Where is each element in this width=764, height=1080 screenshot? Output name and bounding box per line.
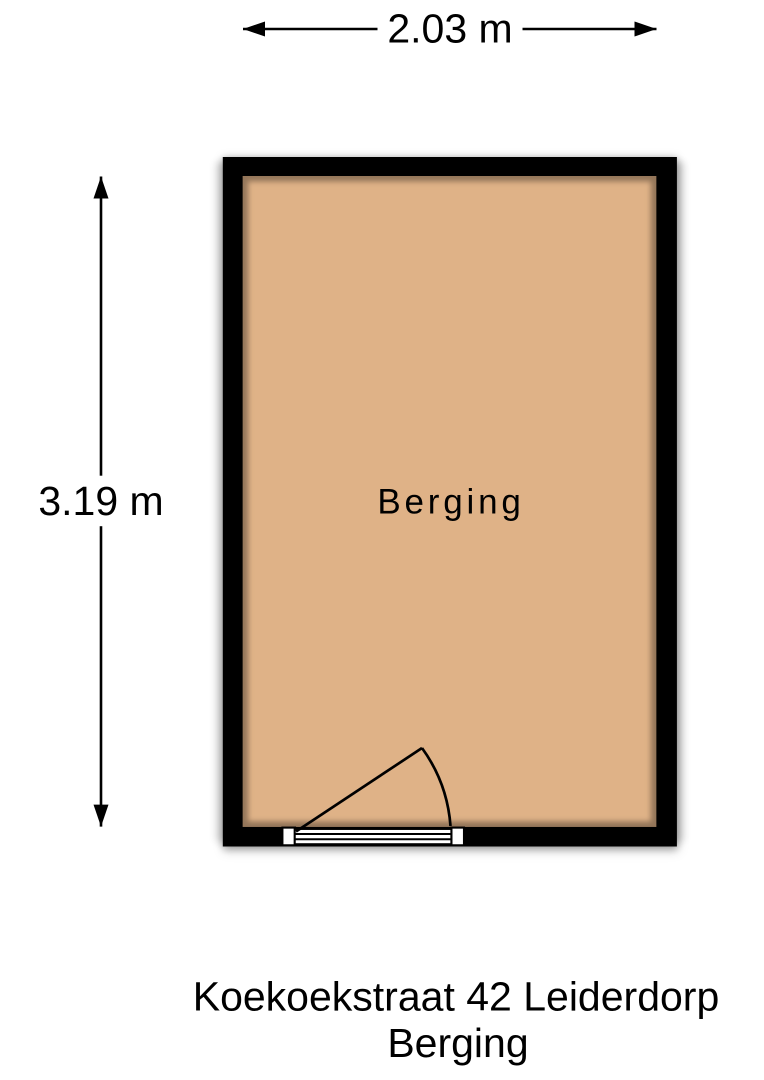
svg-text:Berging: Berging bbox=[387, 1020, 528, 1066]
svg-text:2.03 m: 2.03 m bbox=[387, 6, 512, 52]
svg-text:3.19 m: 3.19 m bbox=[38, 478, 163, 524]
svg-text:Berging: Berging bbox=[377, 482, 524, 521]
svg-text:Koekoekstraat 42 Leiderdorp: Koekoekstraat 42 Leiderdorp bbox=[193, 973, 720, 1019]
